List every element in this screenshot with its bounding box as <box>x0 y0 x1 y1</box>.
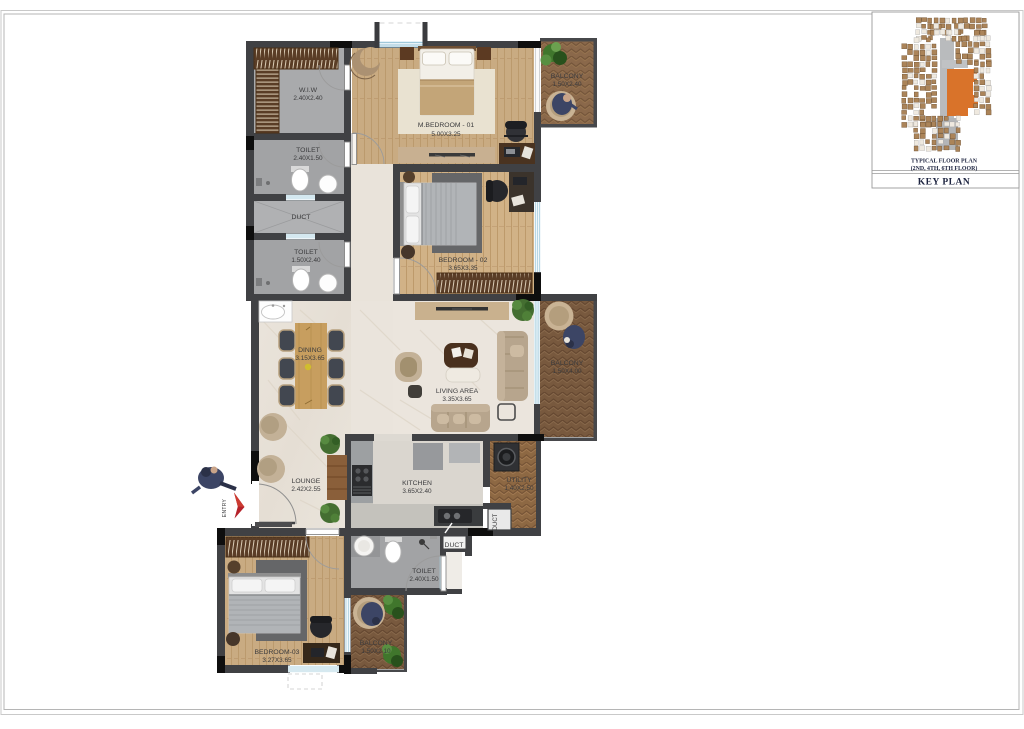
svg-text:BEDROOM - 02: BEDROOM - 02 <box>439 257 488 264</box>
svg-text:DUCT: DUCT <box>493 513 499 530</box>
svg-text:LOUNGE: LOUNGE <box>292 478 321 485</box>
svg-text:3.35X3.65: 3.35X3.65 <box>442 396 472 403</box>
svg-text:DINING: DINING <box>298 347 322 354</box>
svg-text:TYPICAL FLOOR PLAN: TYPICAL FLOOR PLAN <box>911 159 978 165</box>
svg-text:TOILET: TOILET <box>412 568 436 575</box>
svg-text:TOILET: TOILET <box>294 249 318 256</box>
svg-text:M.BEDROOM - 01: M.BEDROOM - 01 <box>418 122 474 129</box>
svg-text:TOILET: TOILET <box>296 147 320 154</box>
svg-text:1.50X4.00: 1.50X4.00 <box>552 368 582 375</box>
svg-text:BALCONY: BALCONY <box>360 640 393 647</box>
svg-text:1.50X2.40: 1.50X2.40 <box>291 257 321 264</box>
svg-text:DUCT: DUCT <box>445 542 464 549</box>
svg-text:KEY PLAN: KEY PLAN <box>918 178 970 188</box>
svg-text:2.40X1.50: 2.40X1.50 <box>293 155 323 162</box>
svg-text:BALCONY: BALCONY <box>551 73 584 80</box>
svg-text:1.50X2.40: 1.50X2.40 <box>552 81 582 88</box>
svg-text:W.I.W: W.I.W <box>299 87 318 94</box>
svg-text:KITCHEN: KITCHEN <box>402 480 432 487</box>
svg-text:DUCT: DUCT <box>292 214 311 221</box>
svg-text:UTILITY: UTILITY <box>506 477 532 484</box>
svg-text:BALCONY: BALCONY <box>551 360 584 367</box>
svg-text:3.27X3.65: 3.27X3.65 <box>262 657 292 664</box>
svg-text:BEDROOM-03: BEDROOM-03 <box>255 649 300 656</box>
svg-text:(2ND, 4TH, 6TH FLOOR): (2ND, 4TH, 6TH FLOOR) <box>911 165 978 172</box>
svg-text:2.40X1.50: 2.40X1.50 <box>409 576 439 583</box>
svg-text:LIVING AREA: LIVING AREA <box>436 388 479 395</box>
svg-text:1.50X2.10: 1.50X2.10 <box>361 648 391 655</box>
svg-text:2.40X2.40: 2.40X2.40 <box>293 95 323 102</box>
svg-text:ENTRY: ENTRY <box>222 498 228 517</box>
svg-text:1.40X2.50: 1.40X2.50 <box>504 485 534 492</box>
svg-text:3.15X3.65: 3.15X3.65 <box>295 355 325 362</box>
svg-text:3.65X3.35: 3.65X3.35 <box>448 265 478 272</box>
svg-text:3.65X2.40: 3.65X2.40 <box>402 488 432 495</box>
svg-text:5.00X3.25: 5.00X3.25 <box>431 131 461 138</box>
svg-text:2.42X2.55: 2.42X2.55 <box>291 486 321 493</box>
